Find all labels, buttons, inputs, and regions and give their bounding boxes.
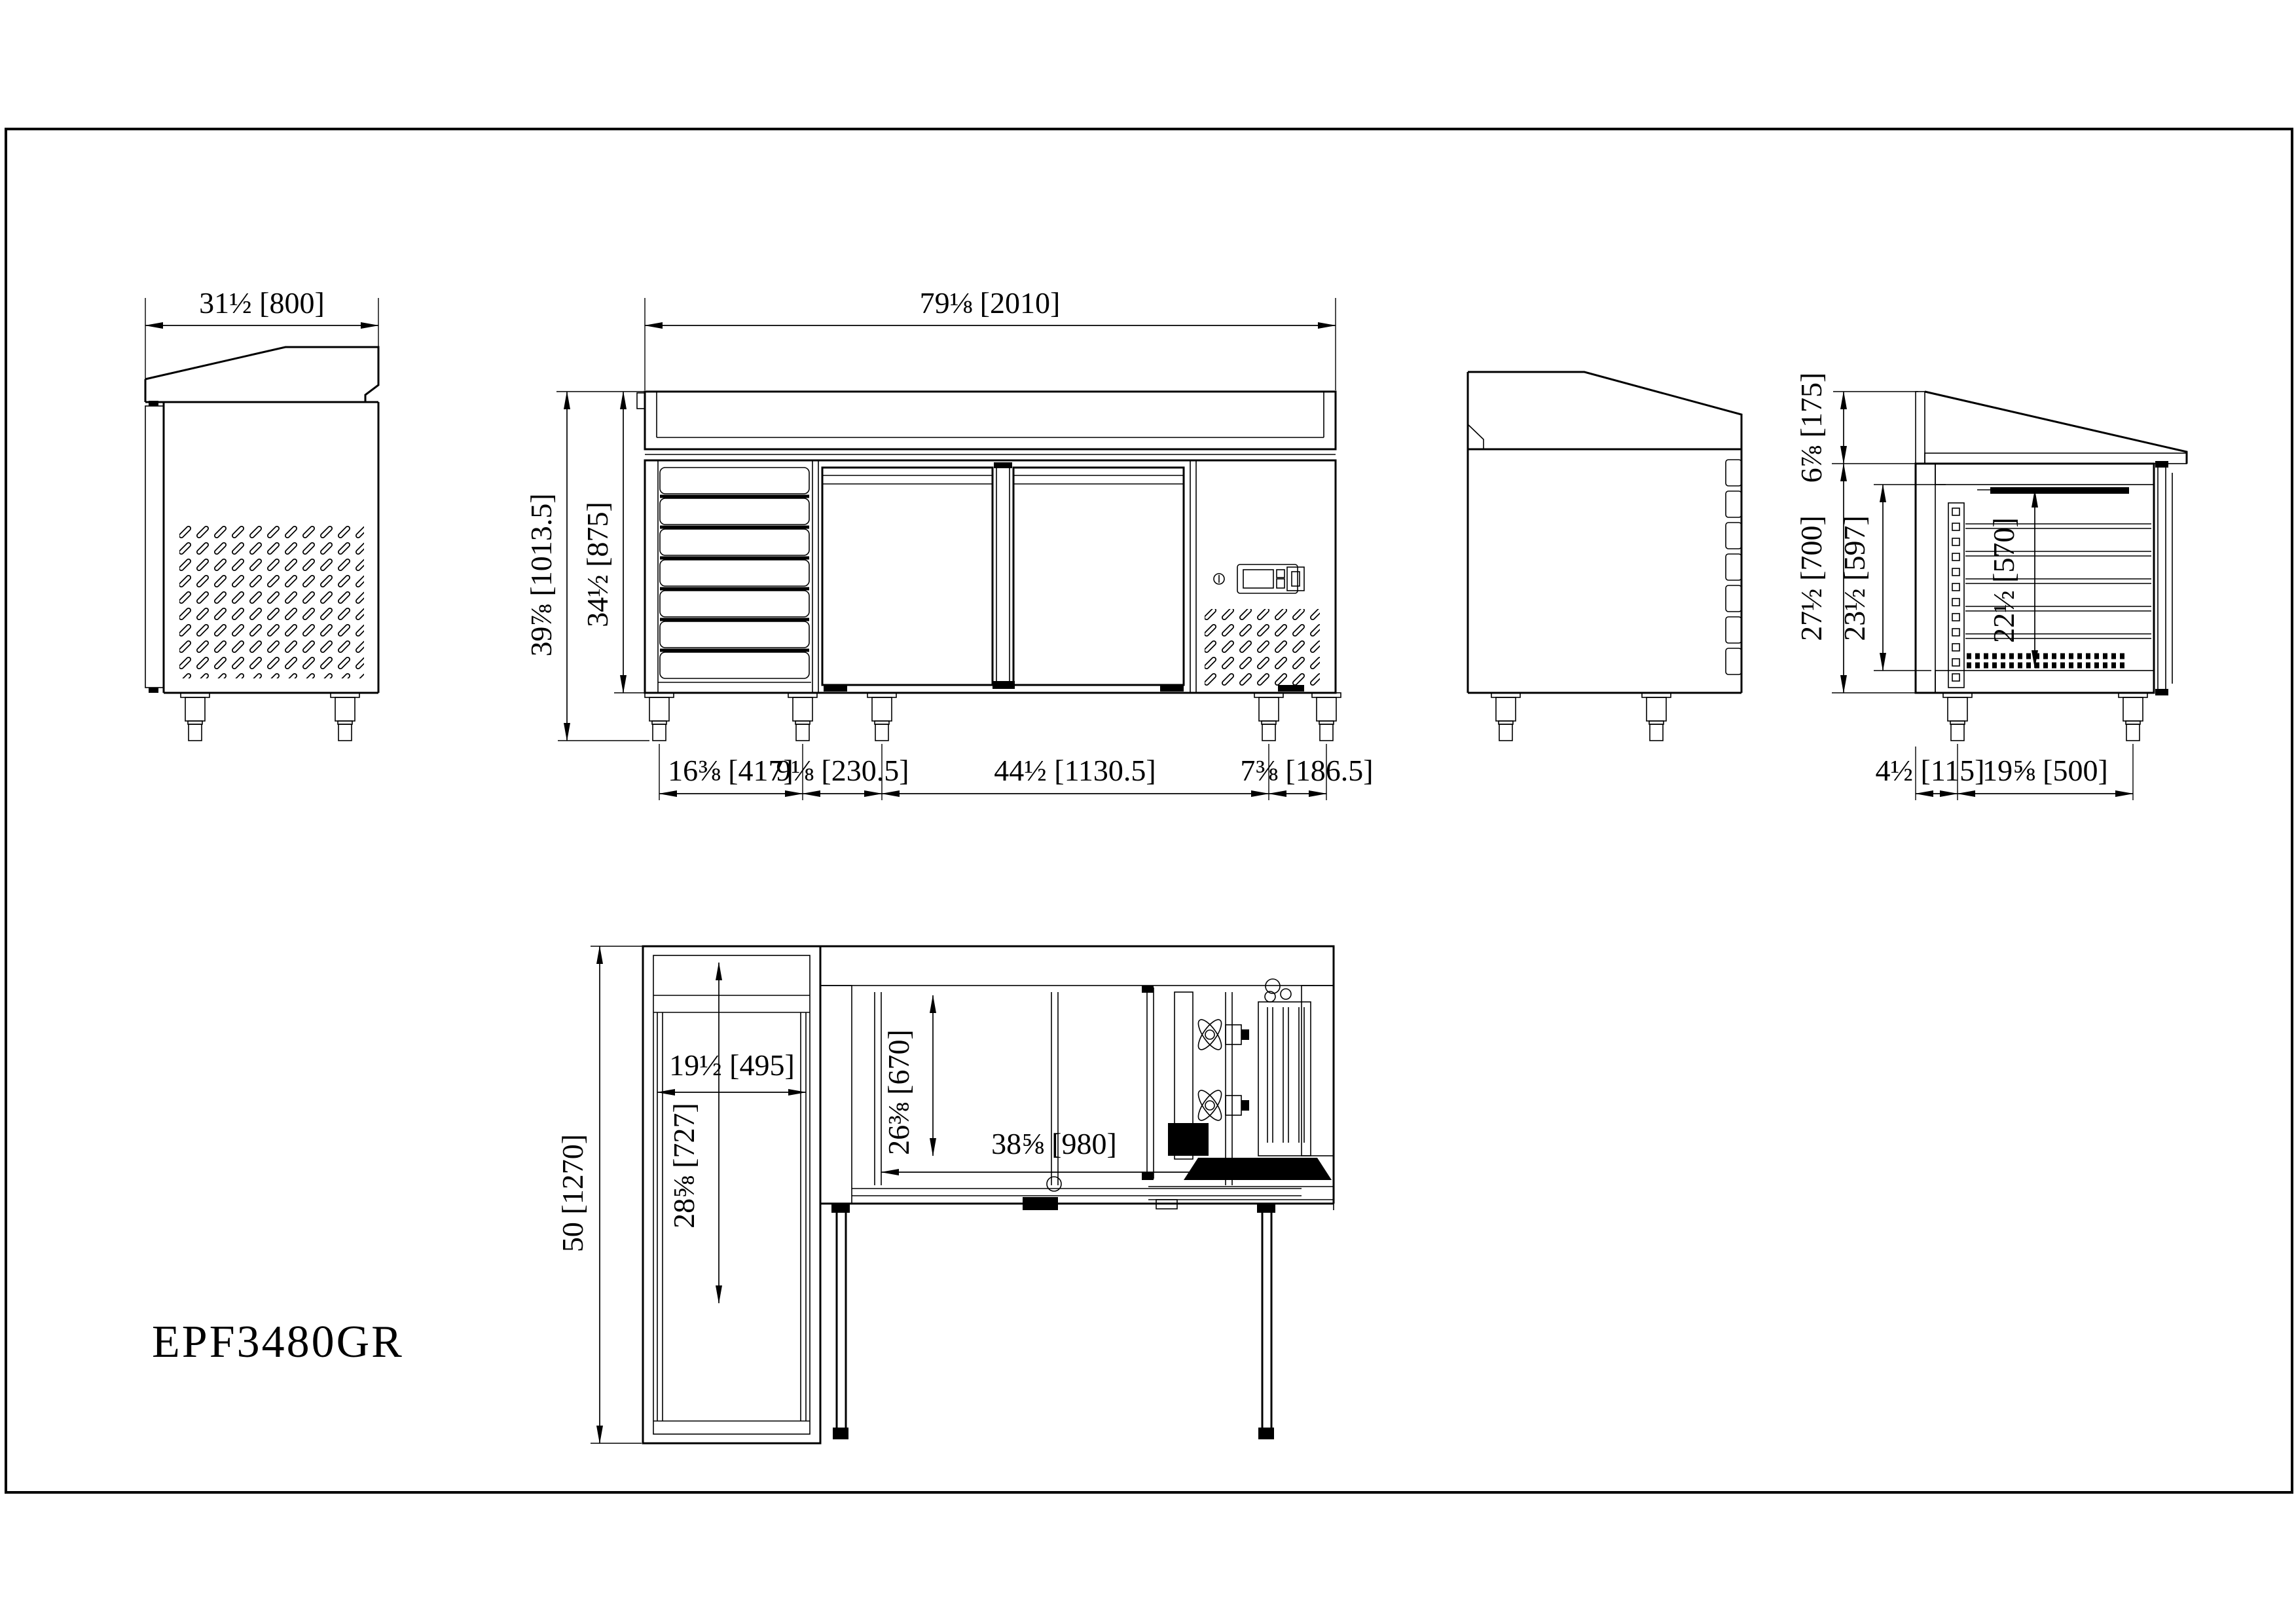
plan-open-door-left	[831, 1204, 850, 1439]
worktop-riser	[637, 392, 1336, 454]
side-louver-vent	[179, 523, 364, 678]
dim-front-b4: 7⅜ [186.5]	[1240, 754, 1373, 787]
insulation-bottom	[1935, 671, 2154, 693]
front-view: 79⅛ [2010] 39⅞ [1013.5] 34½ [875]	[524, 286, 1374, 800]
drawing-sheet: 31½ [800] 79⅛ [2010] 39⅞ [1013.5] 34½ [8…	[0, 0, 2296, 1624]
plan-view: 50 [1270] 19½ [495] 28⅝ [727] 26⅜ [670] …	[556, 946, 1334, 1443]
interior-shelf-rails	[1948, 487, 2151, 688]
section-door-cut	[2155, 461, 2172, 695]
plan-drawer-module: 19½ [495] 28⅝ [727]	[643, 946, 820, 1443]
front-door-divider	[993, 462, 1015, 689]
right-side-legs	[1491, 693, 1671, 741]
section-bottom-dimensions: 4½ [115] 19⅝ [500]	[1876, 744, 2133, 800]
plan-insulation-left	[820, 986, 852, 1204]
plan-insulation-right	[1302, 986, 1334, 1156]
front-door-left	[822, 468, 993, 685]
dim-plan-drawer-width: 19½ [495]	[669, 1048, 795, 1082]
dim-sec-outer: 27½ [700]	[1795, 515, 1828, 641]
riser-section-cut	[1916, 392, 1925, 464]
condenser-coil	[1258, 979, 1311, 1156]
worktop-section-cut	[1925, 453, 2187, 464]
plan-insulation-back	[820, 946, 1334, 986]
front-view-legs	[645, 693, 1341, 741]
insulation-top	[1935, 464, 2154, 485]
dim-front-height-body: 34½ [875]	[581, 502, 614, 627]
temperature-controller	[1237, 564, 1304, 593]
dim-plan-cavity-depth: 26⅜ [670]	[882, 1029, 915, 1155]
front-louver-vent	[1205, 609, 1320, 686]
drawer-side-tabs	[1726, 460, 1741, 674]
front-machine-section	[1190, 460, 1320, 693]
front-drawer-stack	[658, 460, 818, 693]
dim-side-width: 31½ [800]	[199, 286, 325, 320]
dim-front-b1: 16⅜ [417]	[668, 754, 793, 787]
evaporator-fan-1	[1194, 1016, 1249, 1053]
front-door-right	[1013, 468, 1184, 685]
dim-front-b3: 44½ [1130.5]	[994, 754, 1156, 787]
section-view: 6⅞ [175] 27½ [700] 23½ [597] 22½ [570] 4…	[1795, 373, 2187, 800]
section-dimensions: 6⅞ [175] 27½ [700] 23½ [597] 22½ [570]	[1795, 373, 2079, 693]
dim-sec-b1: 4½ [115]	[1876, 754, 1985, 787]
dim-plan-door-span: 38⅝ [980]	[991, 1127, 1117, 1160]
lock-keyhole	[1214, 574, 1224, 584]
sheet-border	[6, 129, 2292, 1492]
dim-sec-cavity: 22½ [570]	[1987, 517, 2020, 643]
dim-front-b2: 9⅛ [230.5]	[776, 754, 909, 787]
plan-machine-compartment	[1142, 979, 1334, 1210]
dim-plan-depth: 50 [1270]	[556, 1134, 589, 1252]
section-legs	[1943, 693, 2147, 741]
dim-sec-inner: 23½ [597]	[1838, 515, 1871, 641]
evaporator-fan-2	[1194, 1087, 1249, 1124]
left-side-view: 31½ [800]	[145, 286, 378, 741]
dim-front-height-total: 39⅞ [1013.5]	[524, 493, 558, 656]
technical-drawing-epf3480gr: 31½ [800] 79⅛ [2010] 39⅞ [1013.5] 34½ [8…	[0, 0, 2296, 1624]
dim-plan-drawer-depth: 28⅝ [727]	[667, 1103, 701, 1228]
side-view-legs	[181, 693, 359, 741]
model-number: EPF3480GR	[152, 1317, 404, 1367]
plan-open-door-right	[1257, 1204, 1275, 1439]
dim-sec-b2: 19⅝ [500]	[1982, 754, 2108, 787]
side-door-panel	[145, 406, 164, 688]
dim-sec-top: 6⅞ [175]	[1795, 373, 1828, 483]
right-side-view	[1468, 372, 1741, 741]
insulation-left-wall	[1916, 464, 1935, 693]
dim-front-width: 79⅛ [2010]	[920, 286, 1061, 320]
front-bottom-dimensions: 16⅜ [417] 9⅛ [230.5] 44½ [1130.5] 7⅜ [18…	[659, 744, 1374, 800]
